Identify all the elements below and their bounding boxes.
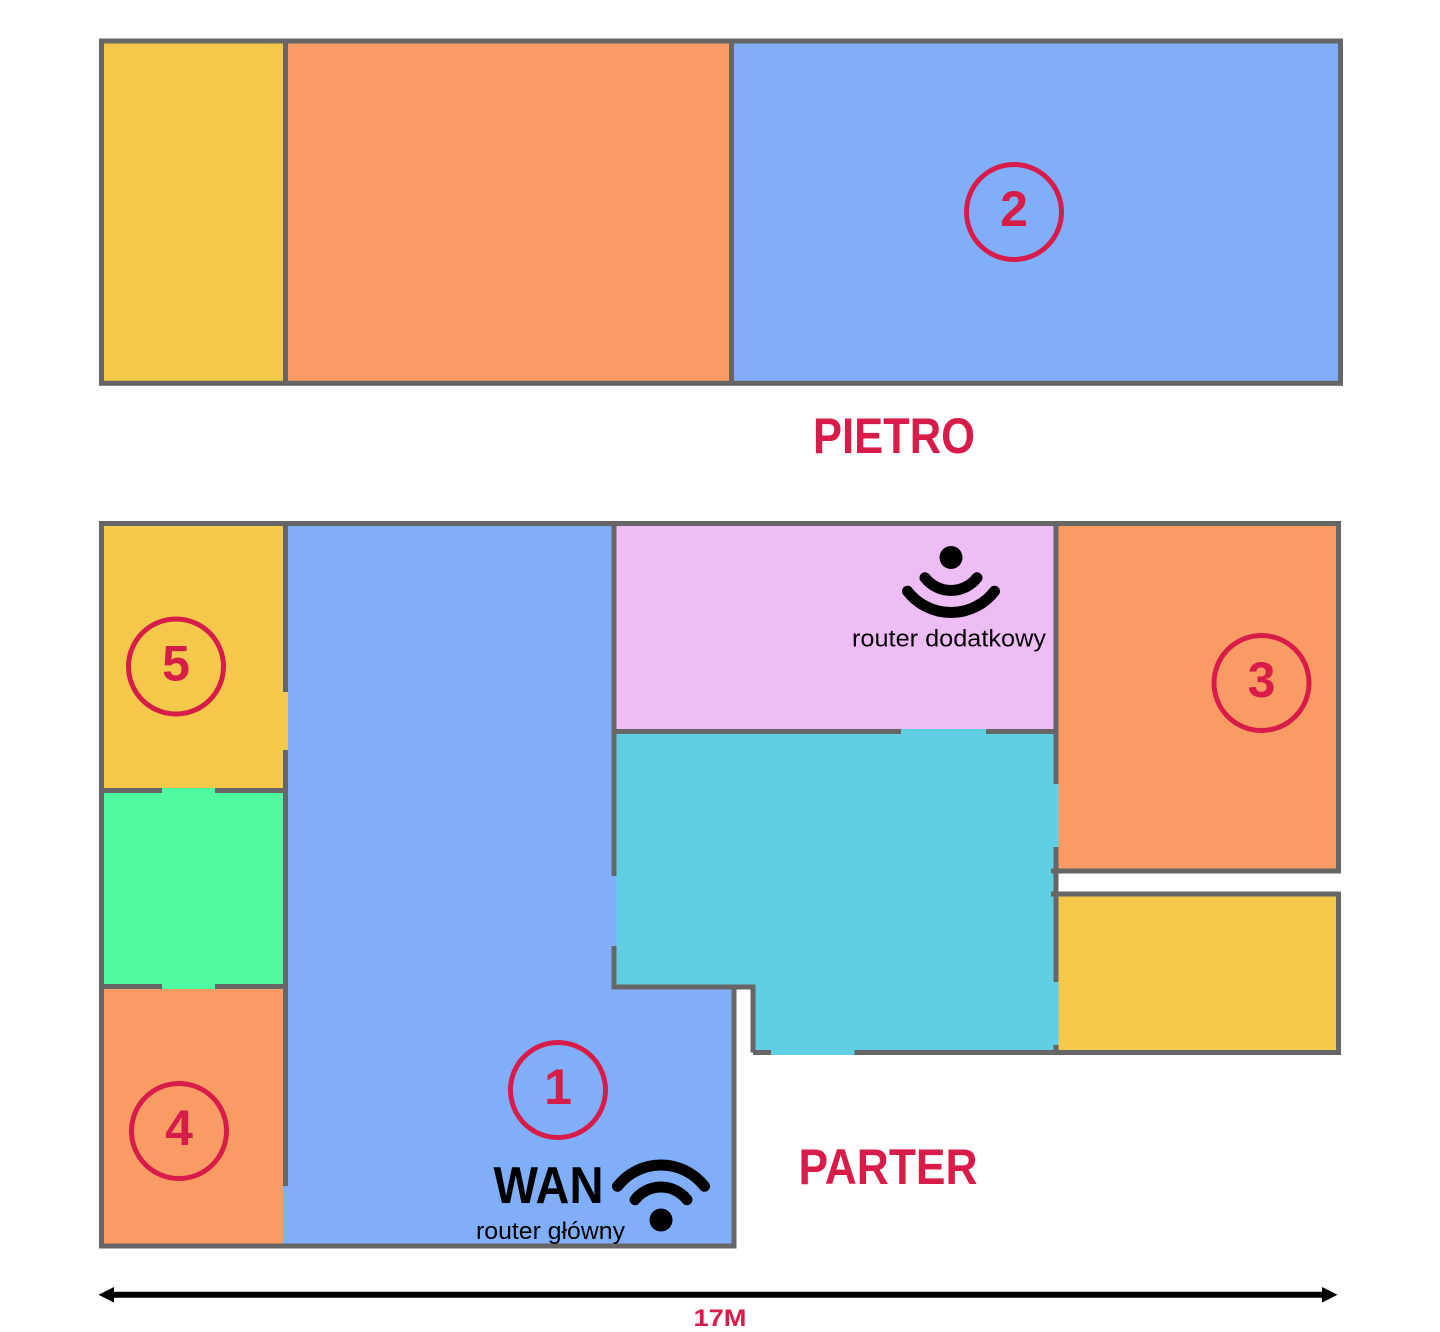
svg-text:router dodatkowy: router dodatkowy	[852, 626, 1046, 653]
svg-text:1: 1	[544, 1059, 572, 1115]
svg-text:17M: 17M	[694, 1305, 747, 1332]
svg-text:4: 4	[165, 1100, 193, 1156]
svg-text:WAN: WAN	[494, 1157, 604, 1215]
svg-text:PIETRO: PIETRO	[813, 408, 975, 464]
svg-text:router główny: router główny	[476, 1218, 625, 1245]
svg-text:3: 3	[1248, 652, 1276, 708]
svg-text:5: 5	[162, 636, 190, 692]
svg-text:PARTER: PARTER	[799, 1139, 978, 1195]
svg-text:2: 2	[1000, 181, 1028, 237]
